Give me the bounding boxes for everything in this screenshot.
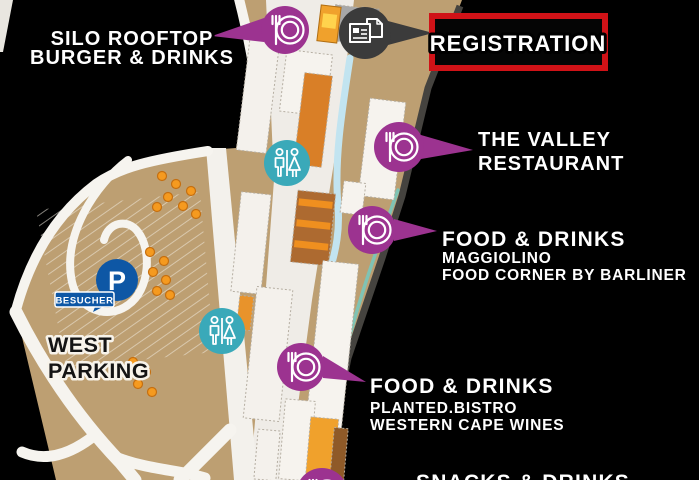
tree-icon bbox=[172, 180, 181, 189]
maggiolino-label-line2: MAGGIOLINO bbox=[442, 250, 552, 267]
tree-icon bbox=[162, 276, 171, 285]
besucher-sign-label: BESUCHER bbox=[55, 296, 113, 307]
venue-map-svg: P BESUCHER WEST PARKING SILO ROOFTOP BUR… bbox=[0, 0, 699, 480]
registration-label: REGISTRATION bbox=[430, 31, 607, 56]
tree-icon bbox=[179, 202, 188, 211]
tree-icon bbox=[146, 248, 155, 257]
food-truck-roof bbox=[322, 13, 338, 29]
silo-label-line2: BURGER & DRINKS bbox=[30, 47, 234, 69]
tree-icon bbox=[187, 187, 196, 196]
valley-restaurant-marker[interactable] bbox=[374, 122, 473, 172]
maggiolino-label-line1: FOOD & DRINKS bbox=[442, 228, 626, 251]
map-corner-sliver bbox=[0, 0, 13, 52]
west-parking-label-line2: PARKING bbox=[48, 359, 149, 383]
snacks-label-line1: SNACKS & DRINKS bbox=[416, 471, 630, 480]
maggiolino-label-line3: FOOD CORNER BY BARLINER bbox=[442, 267, 687, 284]
restroom-marker-south[interactable] bbox=[199, 308, 245, 354]
building bbox=[254, 429, 280, 480]
tree-icon bbox=[153, 203, 162, 212]
tree-icon bbox=[153, 287, 162, 296]
tree-icon bbox=[192, 210, 201, 219]
restroom-marker-north[interactable] bbox=[264, 140, 310, 186]
pointer-triangle bbox=[212, 18, 264, 42]
tree-icon bbox=[149, 268, 158, 277]
tree-icon bbox=[158, 172, 167, 181]
venue-map: P BESUCHER WEST PARKING SILO ROOFTOP BUR… bbox=[0, 0, 699, 480]
pointer-triangle bbox=[421, 135, 473, 159]
tree-icon bbox=[166, 291, 175, 300]
planted-label-line2: PLANTED.BISTRO bbox=[370, 400, 517, 417]
planted-label-line1: FOOD & DRINKS bbox=[370, 375, 554, 398]
registration-highlight-box[interactable]: REGISTRATION bbox=[430, 16, 607, 68]
valley-label-line2: RESTAURANT bbox=[478, 153, 624, 175]
pointer-triangle bbox=[394, 219, 437, 241]
tree-icon bbox=[148, 388, 157, 397]
valley-label-line1: THE VALLEY bbox=[478, 129, 611, 151]
dining-icon bbox=[277, 343, 325, 391]
dining-icon bbox=[261, 6, 309, 54]
west-parking-label-line1: WEST bbox=[48, 333, 112, 357]
tree-icon bbox=[160, 257, 169, 266]
dining-icon bbox=[348, 206, 396, 254]
tree-icon bbox=[164, 193, 173, 202]
planted-label-line3: WESTERN CAPE WINES bbox=[370, 417, 564, 434]
